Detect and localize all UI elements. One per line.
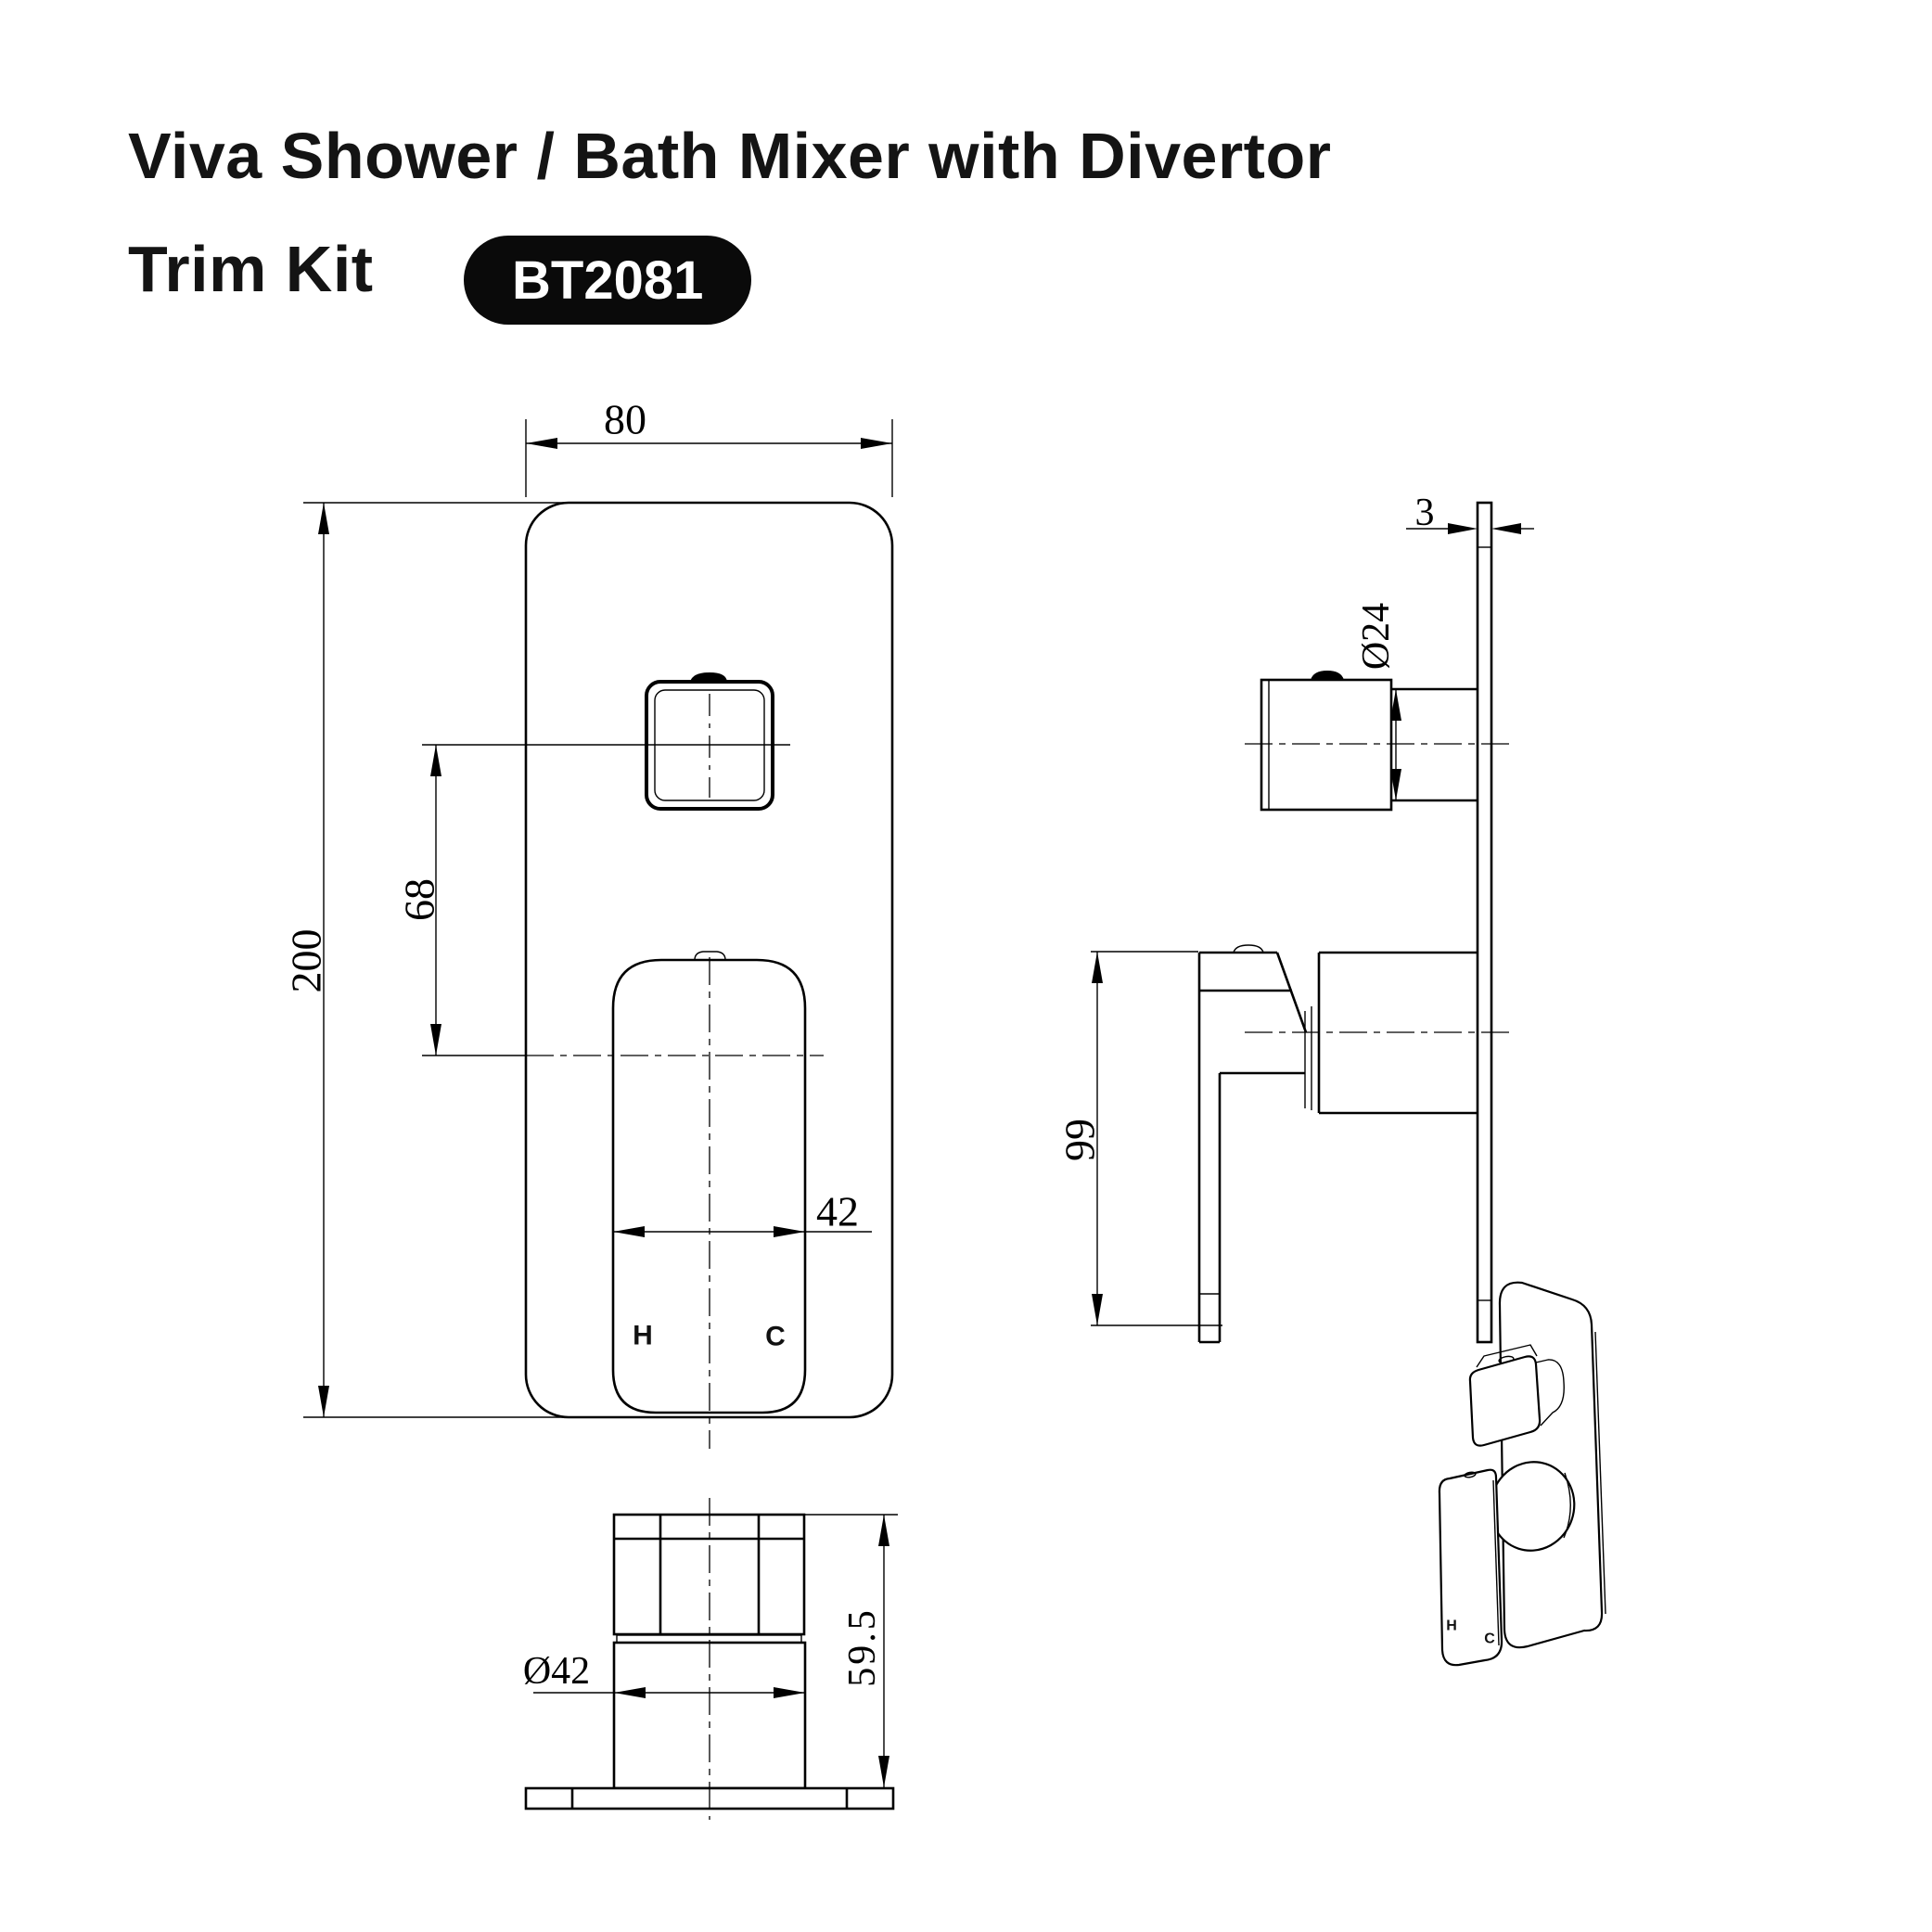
front-dim-width: 80 [526,396,892,498]
side-handle [1199,945,1514,1342]
bottom-view: Ø42 59.5 [523,1498,898,1820]
perspective-hot-label: H [1446,1619,1457,1634]
bottom-dim-base-diameter-label: Ø42 [523,1650,590,1693]
side-dim-handle-height: 99 [1056,952,1223,1325]
bottom-dim-total-height: 59.5 [804,1515,898,1787]
perspective-cold-label: C [1484,1631,1495,1647]
perspective-knob-face [1470,1356,1540,1445]
drawing-sheet: Viva Shower / Bath Mixer with Divertor T… [0,0,1932,1932]
front-view: H C 80 200 [283,396,893,1450]
front-hot-label: H [633,1321,653,1351]
front-dim-height-label: 200 [283,929,330,993]
perspective-view: H C [1439,1283,1606,1666]
side-dim-thickness: 3 [1406,492,1534,534]
front-dim-handle-width-label: 42 [816,1188,859,1235]
front-dim-width-label: 80 [604,396,646,443]
side-dim-thickness-label: 3 [1415,492,1435,534]
side-dim-knob-label: Ø24 [1355,603,1398,670]
side-view: 3 Ø24 [1056,492,1535,1342]
front-cold-label: C [765,1322,786,1352]
side-plate-strip [1478,503,1491,1342]
front-dim-spacing-label: 68 [396,878,443,921]
bottom-dim-total-height-label: 59.5 [841,1607,884,1687]
side-knob: Ø24 [1245,603,1514,810]
technical-drawing: H C 80 200 [0,0,1932,1932]
side-dim-handle-height-label: 99 [1056,1119,1104,1161]
